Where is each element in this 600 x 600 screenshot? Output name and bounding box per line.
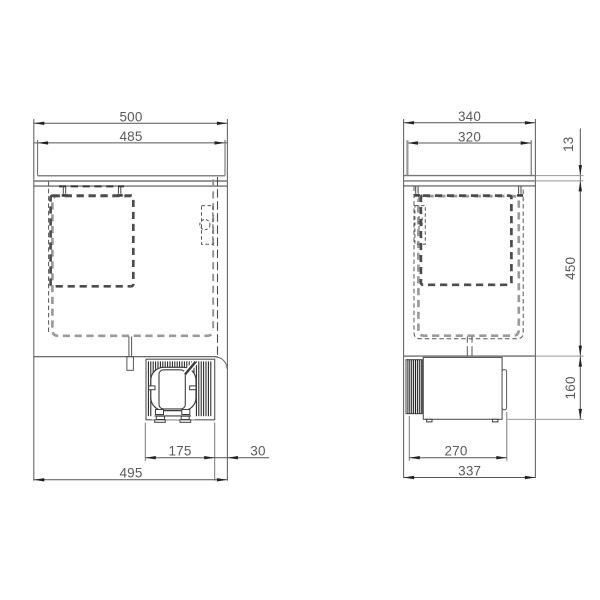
svg-text:340: 340 <box>458 109 481 124</box>
svg-text:450: 450 <box>563 257 578 280</box>
svg-text:13: 13 <box>561 136 576 151</box>
svg-text:337: 337 <box>458 463 481 478</box>
svg-text:160: 160 <box>563 376 578 399</box>
svg-text:495: 495 <box>119 466 142 481</box>
svg-text:270: 270 <box>444 444 467 459</box>
svg-text:320: 320 <box>458 129 481 144</box>
svg-text:500: 500 <box>119 110 142 125</box>
svg-text:30: 30 <box>250 444 265 459</box>
svg-text:175: 175 <box>168 444 191 459</box>
svg-text:485: 485 <box>119 129 142 144</box>
